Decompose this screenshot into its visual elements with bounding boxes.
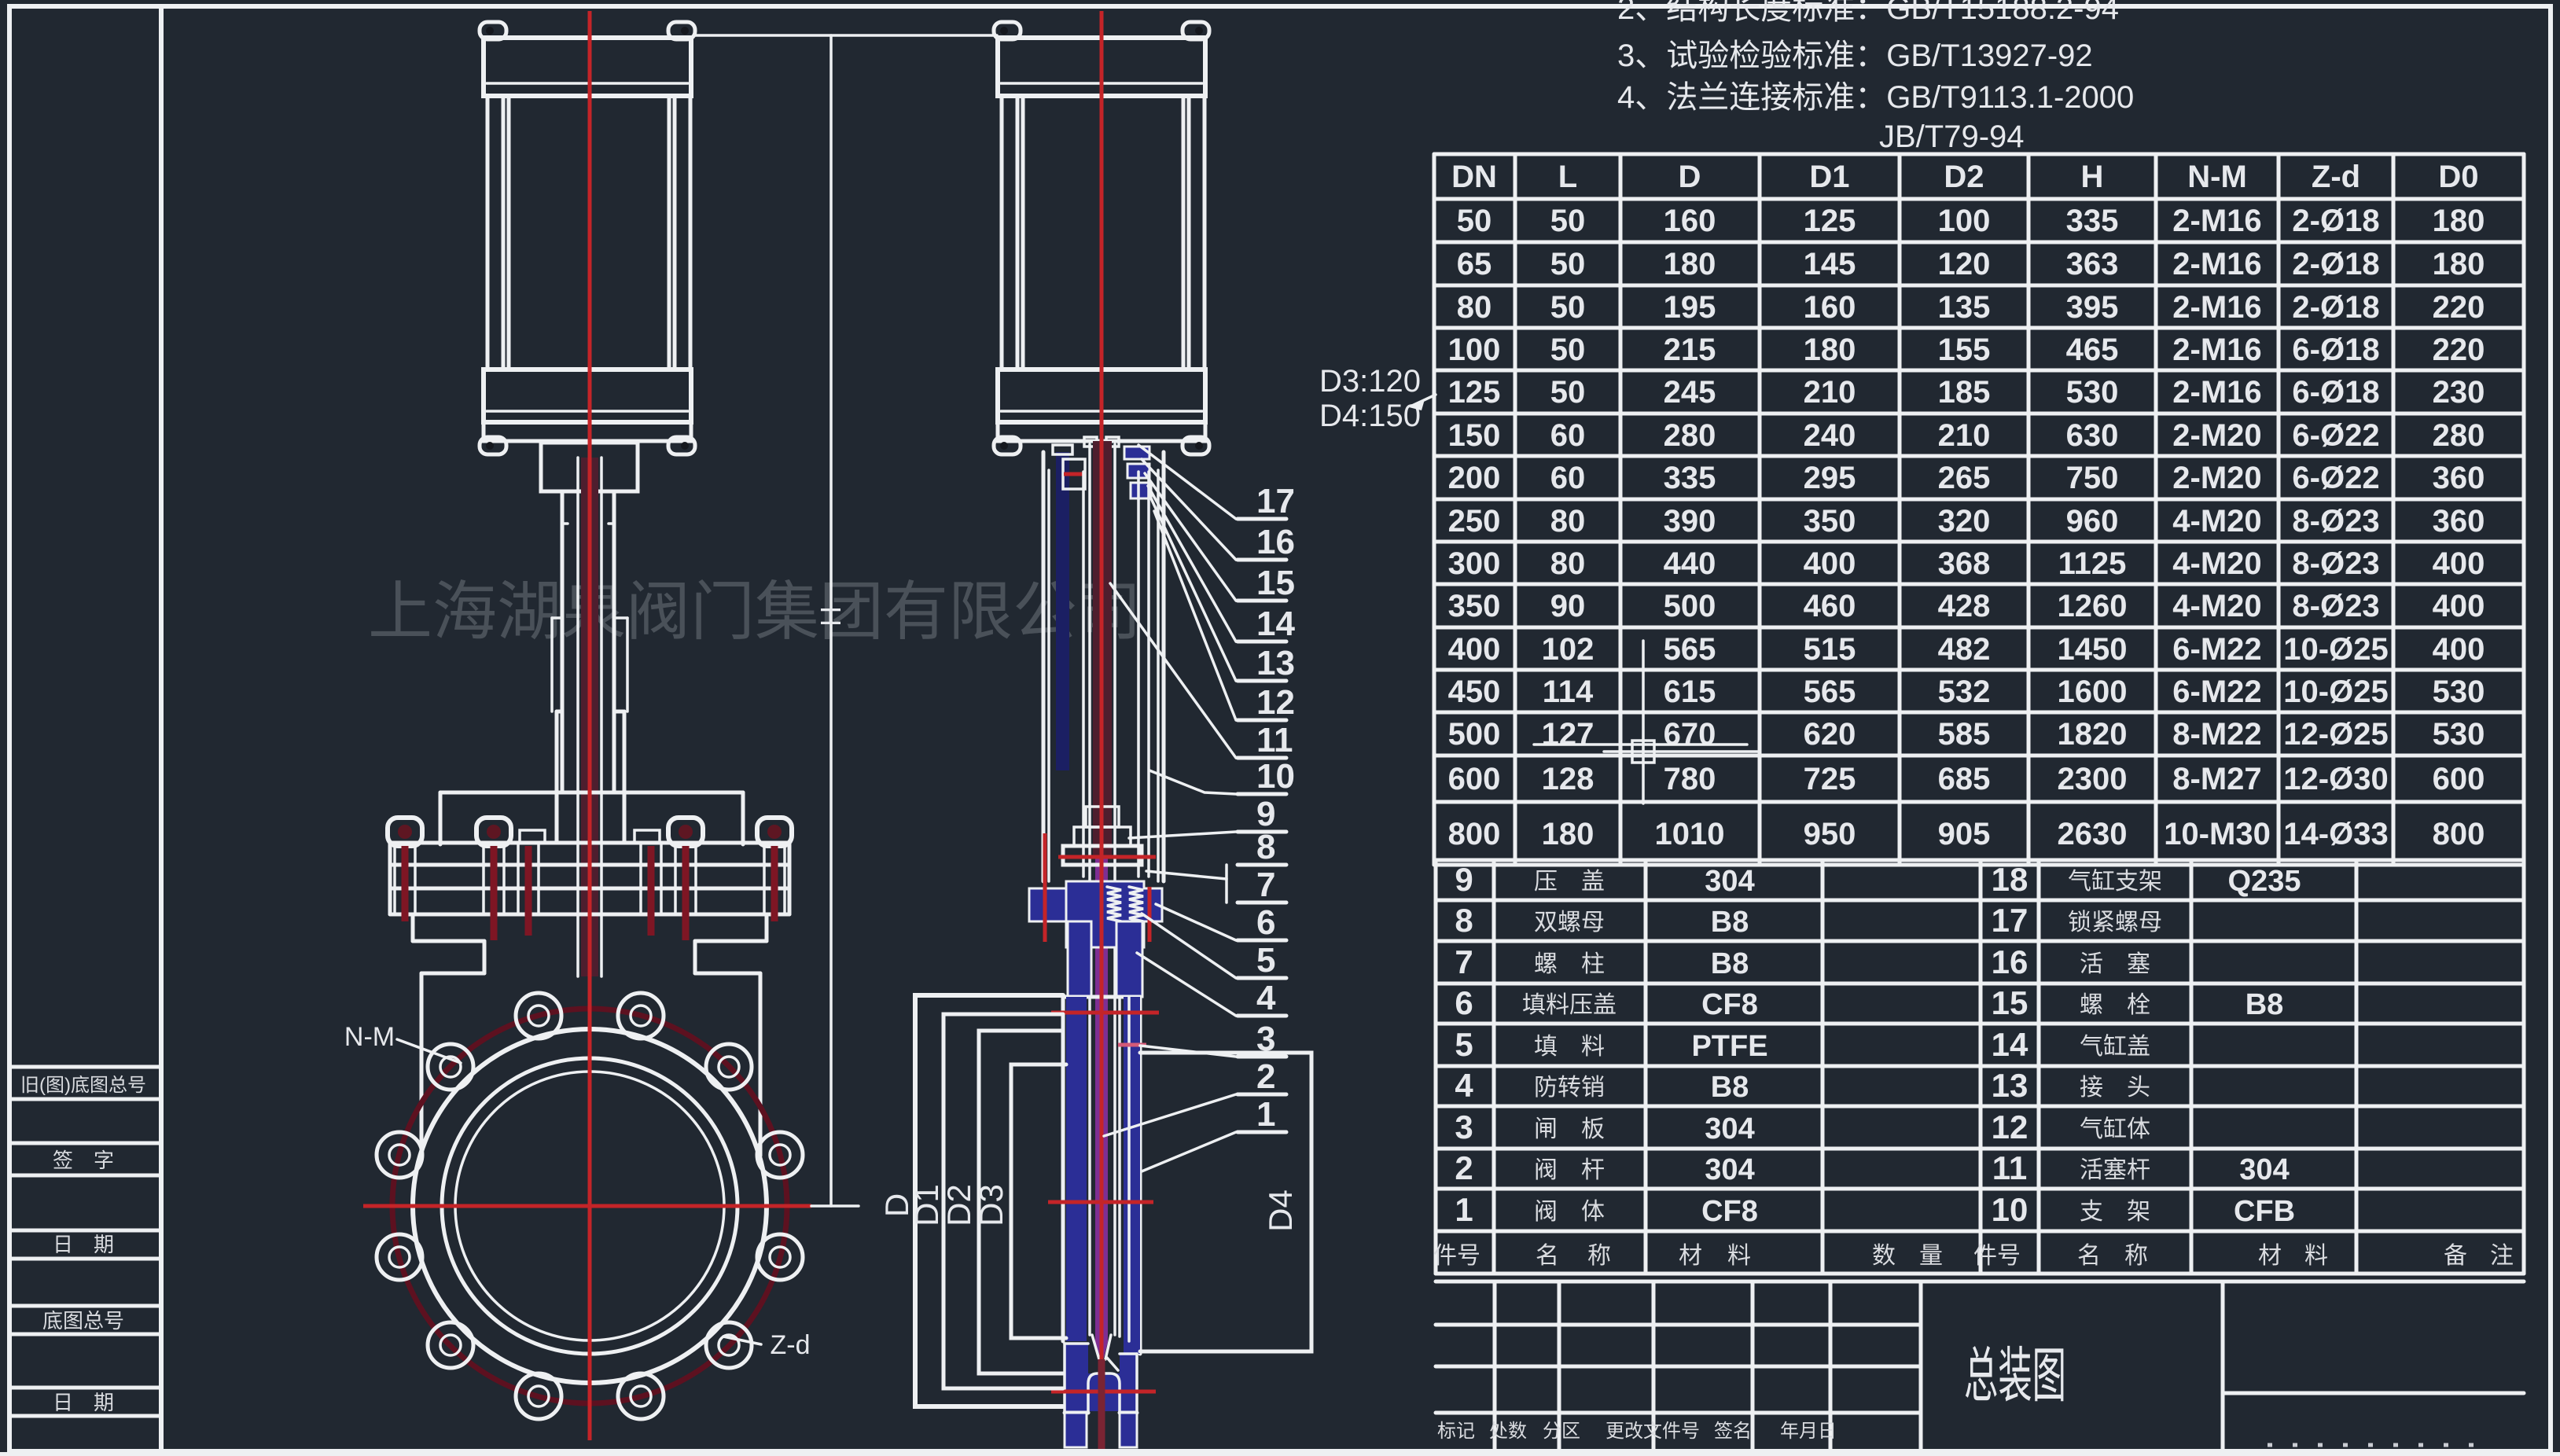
svg-text:125: 125: [1804, 204, 1856, 238]
svg-text:180: 180: [2433, 247, 2485, 281]
svg-text:400: 400: [2433, 589, 2485, 623]
svg-text:年月日: 年月日: [1780, 1421, 1837, 1442]
svg-text:600: 600: [1448, 762, 1501, 796]
svg-text:日 期: 日 期: [53, 1233, 114, 1256]
svg-text:2: 2: [1455, 1149, 1473, 1186]
svg-text:活 塞: 活 塞: [2080, 951, 2150, 977]
svg-text:532: 532: [1938, 675, 1991, 709]
svg-text:800: 800: [2433, 817, 2485, 851]
svg-text:780: 780: [1664, 762, 1716, 796]
svg-text:800: 800: [1448, 817, 1501, 851]
svg-text:14: 14: [1992, 1026, 2029, 1063]
svg-text:称: 称: [1587, 1243, 1611, 1269]
svg-text:400: 400: [1448, 632, 1501, 667]
svg-text:65: 65: [1457, 247, 1492, 281]
svg-text:160: 160: [1664, 204, 1716, 238]
svg-text:100: 100: [1938, 204, 1991, 238]
svg-text:2-M16: 2-M16: [2172, 333, 2261, 367]
svg-text:B8: B8: [1711, 1071, 1749, 1104]
svg-text:4: 4: [1455, 1067, 1473, 1104]
svg-text:1260: 1260: [2058, 589, 2128, 623]
svg-text:PTFE: PTFE: [1691, 1030, 1767, 1063]
svg-text:80: 80: [1550, 546, 1586, 581]
svg-text:210: 210: [1804, 375, 1856, 410]
svg-text:515: 515: [1804, 632, 1856, 667]
svg-text:2-M16: 2-M16: [2172, 290, 2261, 325]
svg-text:2-Ø18: 2-Ø18: [2292, 204, 2379, 238]
svg-text:阀 杆: 阀 杆: [1534, 1157, 1605, 1183]
svg-text:称: 称: [2124, 1243, 2148, 1269]
svg-text:1010: 1010: [1655, 817, 1725, 851]
svg-text:950: 950: [1804, 817, 1856, 851]
svg-text:670: 670: [1664, 717, 1716, 752]
svg-text:135: 135: [1938, 290, 1991, 325]
svg-text:460: 460: [1804, 589, 1856, 623]
svg-text:6: 6: [1455, 984, 1473, 1021]
svg-text:630: 630: [2066, 418, 2119, 453]
svg-text:304: 304: [1705, 1112, 1754, 1145]
svg-text:335: 335: [2066, 204, 2119, 238]
svg-text:565: 565: [1804, 675, 1856, 709]
svg-text:Z-d: Z-d: [771, 1330, 811, 1360]
svg-text:600: 600: [2433, 762, 2485, 796]
svg-text:名: 名: [1536, 1243, 1559, 1269]
svg-text:210: 210: [1938, 418, 1991, 453]
svg-text:13: 13: [1256, 644, 1295, 682]
svg-text:245: 245: [1664, 375, 1716, 410]
svg-text:10-M30: 10-M30: [2164, 817, 2271, 851]
svg-text:4-M20: 4-M20: [2172, 546, 2261, 581]
svg-text:180: 180: [1664, 247, 1716, 281]
svg-text:1600: 1600: [2058, 675, 2128, 709]
svg-text:50: 50: [1550, 333, 1586, 367]
svg-text:8-Ø23: 8-Ø23: [2292, 589, 2379, 623]
svg-text:17: 17: [1256, 482, 1295, 520]
svg-text:件号: 件号: [1433, 1243, 1480, 1269]
svg-text:200: 200: [1448, 461, 1501, 495]
svg-text:D3:120: D3:120: [1319, 364, 1421, 399]
svg-text:名: 名: [2077, 1243, 2101, 1269]
svg-text:L: L: [1558, 160, 1577, 194]
svg-text:18: 18: [1992, 861, 2029, 898]
svg-text:185: 185: [1938, 375, 1991, 410]
svg-text:数: 数: [1872, 1243, 1896, 1269]
svg-text:530: 530: [2433, 717, 2485, 752]
svg-text:D2: D2: [1944, 160, 1984, 194]
svg-text:Q235: Q235: [2228, 865, 2301, 898]
svg-text:N-M: N-M: [2187, 160, 2247, 194]
svg-text:双螺母: 双螺母: [1534, 910, 1605, 936]
svg-text:1820: 1820: [2058, 717, 2128, 752]
svg-text:395: 395: [2066, 290, 2119, 325]
svg-text:防转销: 防转销: [1534, 1075, 1605, 1101]
svg-text:6-Ø18: 6-Ø18: [2292, 333, 2379, 367]
svg-text:304: 304: [1705, 865, 1754, 898]
svg-text:13: 13: [1992, 1067, 2029, 1104]
svg-text:2-Ø18: 2-Ø18: [2292, 247, 2379, 281]
svg-text:材: 材: [2258, 1243, 2282, 1269]
svg-text:标记: 标记: [1437, 1421, 1475, 1442]
svg-text:料: 料: [2304, 1243, 2328, 1269]
svg-text:8: 8: [1455, 902, 1473, 939]
svg-text:CF8: CF8: [1701, 988, 1758, 1021]
svg-text:1: 1: [1455, 1191, 1473, 1228]
svg-text:150: 150: [1448, 418, 1501, 453]
svg-text:155: 155: [1938, 333, 1991, 367]
svg-text:905: 905: [1938, 817, 1991, 851]
svg-text:215: 215: [1664, 333, 1716, 367]
svg-text:B8: B8: [2246, 988, 2284, 1021]
svg-text:D3: D3: [973, 1184, 1010, 1226]
svg-text:320: 320: [1938, 504, 1991, 539]
svg-text:360: 360: [2433, 504, 2485, 539]
svg-text:1: 1: [1256, 1095, 1275, 1134]
svg-text:填 料: 填 料: [1534, 1034, 1605, 1060]
svg-text:565: 565: [1664, 632, 1716, 667]
svg-text:128: 128: [1542, 762, 1594, 796]
svg-text:2: 2: [1256, 1057, 1275, 1096]
svg-text:4-M20: 4-M20: [2172, 589, 2261, 623]
svg-text:6-Ø22: 6-Ø22: [2292, 418, 2379, 453]
svg-text:4、法兰连接标准：GB/T9113.1-2000: 4、法兰连接标准：GB/T9113.1-2000: [1617, 80, 2134, 115]
svg-text:80: 80: [1550, 504, 1586, 539]
svg-text:螺 栓: 螺 栓: [2080, 992, 2150, 1018]
svg-text:6-Ø18: 6-Ø18: [2292, 375, 2379, 410]
svg-text:220: 220: [2433, 333, 2485, 367]
svg-text:压 盖: 压 盖: [1534, 869, 1605, 895]
svg-text:60: 60: [1550, 461, 1586, 495]
svg-text:Z-d: Z-d: [2312, 160, 2360, 194]
svg-text:180: 180: [1542, 817, 1594, 851]
svg-text:旧(图)底图总号: 旧(图)底图总号: [20, 1075, 146, 1096]
svg-text:D4:150: D4:150: [1319, 399, 1421, 433]
svg-text:7: 7: [1256, 866, 1275, 904]
svg-text:分区: 分区: [1543, 1421, 1580, 1442]
svg-text:备: 备: [2444, 1243, 2467, 1269]
svg-text:2-M16: 2-M16: [2172, 247, 2261, 281]
svg-text:CF8: CF8: [1701, 1195, 1758, 1228]
svg-text:9: 9: [1455, 861, 1473, 898]
svg-text:10-Ø25: 10-Ø25: [2283, 632, 2388, 667]
svg-text:材: 材: [1679, 1243, 1702, 1269]
svg-text:B8: B8: [1711, 906, 1749, 939]
svg-text:注: 注: [2490, 1243, 2514, 1269]
svg-text:4-M20: 4-M20: [2172, 504, 2261, 539]
svg-text:102: 102: [1542, 632, 1594, 667]
svg-text:530: 530: [2066, 375, 2119, 410]
svg-text:120: 120: [1938, 247, 1991, 281]
svg-text:日 期: 日 期: [53, 1391, 114, 1414]
svg-text:8-M22: 8-M22: [2172, 717, 2261, 752]
svg-text:180: 180: [1804, 333, 1856, 367]
svg-text:960: 960: [2066, 504, 2119, 539]
svg-text:15: 15: [1256, 564, 1295, 602]
svg-text:阀 体: 阀 体: [1534, 1199, 1605, 1225]
svg-text:300: 300: [1448, 546, 1501, 581]
svg-text:6: 6: [1256, 903, 1275, 942]
svg-text:锁紧螺母: 锁紧螺母: [2068, 910, 2162, 936]
svg-text:350: 350: [1804, 504, 1856, 539]
svg-text:8: 8: [1256, 828, 1275, 866]
svg-text:500: 500: [1664, 589, 1716, 623]
svg-text:16: 16: [1256, 523, 1295, 561]
svg-text:230: 230: [2433, 375, 2485, 410]
svg-text:H: H: [2081, 160, 2104, 194]
svg-text:2-M20: 2-M20: [2172, 418, 2261, 453]
svg-text:12: 12: [1992, 1109, 2029, 1145]
svg-text:180: 180: [2433, 204, 2485, 238]
svg-text:8-Ø23: 8-Ø23: [2292, 504, 2379, 539]
svg-text:上海湖泉阀门集团有限公司: 上海湖泉阀门集团有限公司: [368, 576, 1142, 648]
svg-text:14-Ø33: 14-Ø33: [2283, 817, 2388, 851]
svg-text:1125: 1125: [2058, 546, 2127, 581]
svg-text:12-Ø30: 12-Ø30: [2283, 762, 2388, 796]
svg-text:280: 280: [2433, 418, 2485, 453]
svg-text:11: 11: [1992, 1149, 2027, 1186]
svg-text:160: 160: [1804, 290, 1856, 325]
svg-text:DN: DN: [1451, 160, 1497, 194]
svg-text:50: 50: [1550, 375, 1586, 410]
svg-text:400: 400: [2433, 632, 2485, 667]
svg-text:处数: 处数: [1489, 1421, 1527, 1442]
svg-text:接 头: 接 头: [2080, 1075, 2150, 1101]
svg-text:17: 17: [1992, 902, 2029, 939]
svg-text:气缸支架: 气缸支架: [2068, 869, 2162, 895]
svg-text:530: 530: [2433, 675, 2485, 709]
svg-text:3: 3: [1256, 1020, 1275, 1058]
svg-text:725: 725: [1804, 762, 1856, 796]
svg-text:7: 7: [1455, 943, 1473, 980]
svg-text:280: 280: [1664, 418, 1716, 453]
svg-text:活塞杆: 活塞杆: [2080, 1157, 2150, 1183]
svg-text:螺 柱: 螺 柱: [1534, 951, 1605, 977]
svg-text:360: 360: [2433, 461, 2485, 495]
svg-text:125: 125: [1448, 375, 1501, 410]
svg-text:750: 750: [2066, 461, 2119, 495]
svg-text:3: 3: [1455, 1109, 1473, 1145]
svg-text:16: 16: [1992, 943, 2029, 980]
svg-text:5: 5: [1455, 1026, 1473, 1063]
svg-text:50: 50: [1550, 204, 1586, 238]
svg-text:D1: D1: [908, 1184, 945, 1226]
svg-text:2300: 2300: [2058, 762, 2128, 796]
svg-text:80: 80: [1457, 290, 1492, 325]
svg-text:2-M16: 2-M16: [2172, 204, 2261, 238]
svg-text:5: 5: [1256, 941, 1275, 980]
svg-text:件号: 件号: [1973, 1243, 2021, 1269]
svg-text:支 架: 支 架: [2080, 1199, 2150, 1225]
svg-text:295: 295: [1804, 461, 1856, 495]
svg-text:350: 350: [1448, 589, 1501, 623]
svg-text:265: 265: [1938, 461, 1991, 495]
svg-text:H: H: [815, 606, 847, 627]
svg-text:签名: 签名: [1714, 1421, 1752, 1442]
svg-text:D: D: [1679, 160, 1701, 194]
svg-text:195: 195: [1664, 290, 1716, 325]
svg-text:90: 90: [1550, 589, 1586, 623]
svg-text:N-M: N-M: [344, 1022, 395, 1052]
svg-text:127: 127: [1542, 717, 1594, 752]
svg-text:B8: B8: [1711, 947, 1749, 980]
svg-text:14: 14: [1256, 605, 1295, 643]
svg-text:145: 145: [1804, 247, 1856, 281]
svg-text:400: 400: [2433, 546, 2485, 581]
svg-text:500: 500: [1448, 717, 1501, 752]
svg-text:585: 585: [1938, 717, 1991, 752]
svg-text:2-M16: 2-M16: [2172, 375, 2261, 410]
svg-text:D4: D4: [1262, 1189, 1299, 1232]
svg-text:50: 50: [1550, 247, 1586, 281]
svg-text:50: 50: [1457, 204, 1492, 238]
svg-text:8-M27: 8-M27: [2172, 762, 2261, 796]
svg-text:气缸盖: 气缸盖: [2080, 1034, 2150, 1060]
svg-text:11: 11: [1256, 721, 1293, 759]
svg-text:220: 220: [2433, 290, 2485, 325]
svg-text:685: 685: [1938, 762, 1991, 796]
svg-text:368: 368: [1938, 546, 1991, 581]
svg-text:335: 335: [1664, 461, 1716, 495]
svg-text:D1: D1: [1809, 160, 1849, 194]
svg-text:465: 465: [2066, 333, 2119, 367]
svg-text:2、结构长度标准：GB/T15188.2-94: 2、结构长度标准：GB/T15188.2-94: [1617, 0, 2119, 26]
svg-text:签 字: 签 字: [53, 1149, 114, 1172]
svg-text:2-Ø18: 2-Ø18: [2292, 290, 2379, 325]
svg-text:482: 482: [1938, 632, 1991, 667]
svg-text:更改文件号: 更改文件号: [1606, 1421, 1700, 1442]
svg-text:量: 量: [1919, 1243, 1943, 1269]
svg-text:JB/T79-94: JB/T79-94: [1879, 119, 2025, 154]
svg-text:10: 10: [1256, 757, 1295, 796]
svg-text:6-Ø22: 6-Ø22: [2292, 461, 2379, 495]
svg-text:400: 400: [1804, 546, 1856, 581]
svg-text:304: 304: [2239, 1153, 2289, 1186]
svg-text:6-M22: 6-M22: [2172, 632, 2261, 667]
svg-text:D2: D2: [940, 1184, 977, 1226]
svg-text:114: 114: [1543, 675, 1594, 709]
svg-text:6-M22: 6-M22: [2172, 675, 2261, 709]
svg-text:气缸体: 气缸体: [2080, 1116, 2150, 1142]
svg-text:50: 50: [1550, 290, 1586, 325]
svg-text:CFB: CFB: [2234, 1195, 2295, 1228]
svg-text:12-Ø25: 12-Ø25: [2283, 717, 2388, 752]
svg-text:60: 60: [1550, 418, 1586, 453]
svg-text:底图总号: 底图总号: [42, 1309, 124, 1333]
svg-text:240: 240: [1804, 418, 1856, 453]
svg-text:428: 428: [1938, 589, 1991, 623]
svg-text:8-Ø23: 8-Ø23: [2292, 546, 2379, 581]
svg-text:料: 料: [1727, 1243, 1751, 1269]
svg-text:250: 250: [1448, 504, 1501, 539]
svg-text:10: 10: [1992, 1191, 2029, 1228]
svg-text:D0: D0: [2438, 160, 2478, 194]
svg-text:3、试验检验标准：GB/T13927-92: 3、试验检验标准：GB/T13927-92: [1617, 39, 2093, 73]
svg-text:2-M20: 2-M20: [2172, 461, 2261, 495]
svg-text:总装图: 总装图: [1964, 1343, 2066, 1410]
svg-text:450: 450: [1448, 675, 1501, 709]
svg-text:填料压盖: 填料压盖: [1522, 992, 1617, 1018]
svg-text:620: 620: [1804, 717, 1856, 752]
svg-text:615: 615: [1664, 675, 1716, 709]
svg-text:闸 板: 闸 板: [1534, 1116, 1605, 1142]
svg-text:440: 440: [1664, 546, 1716, 581]
svg-text:363: 363: [2066, 247, 2119, 281]
svg-text:304: 304: [1705, 1153, 1754, 1186]
svg-text:15: 15: [1992, 984, 2029, 1021]
svg-text:2630: 2630: [2058, 817, 2128, 851]
svg-text:390: 390: [1664, 504, 1716, 539]
svg-text:4: 4: [1256, 979, 1276, 1017]
svg-text:1450: 1450: [2058, 632, 2128, 667]
svg-text:12: 12: [1256, 683, 1295, 722]
svg-text:10-Ø25: 10-Ø25: [2283, 675, 2388, 709]
svg-text:100: 100: [1448, 333, 1501, 367]
